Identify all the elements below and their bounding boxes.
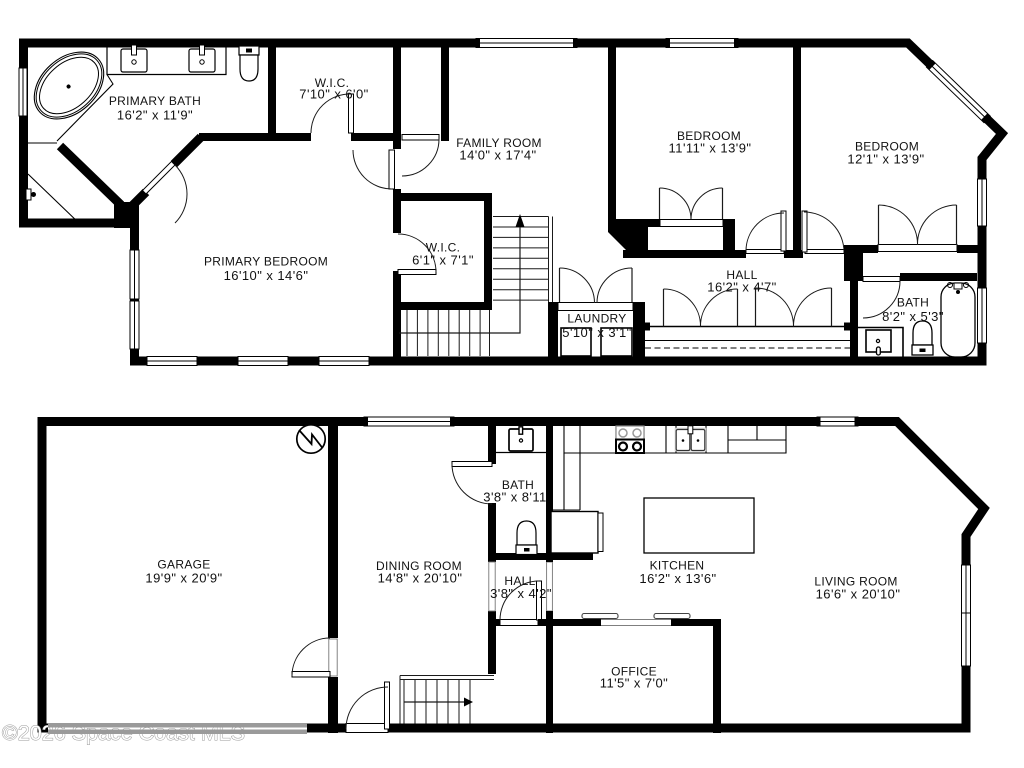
- svg-text:8'2" x 5'3": 8'2" x 5'3": [882, 309, 944, 324]
- svg-text:6'1" x 7'1": 6'1" x 7'1": [412, 253, 474, 268]
- svg-text:3'8" x 4'2": 3'8" x 4'2": [490, 586, 552, 601]
- svg-text:GARAGE: GARAGE: [157, 558, 210, 572]
- svg-text:16'2" x 13'6": 16'2" x 13'6": [639, 571, 716, 586]
- svg-text:16'2" x 11'9": 16'2" x 11'9": [117, 108, 193, 123]
- svg-text:LAUNDRY: LAUNDRY: [567, 312, 626, 326]
- svg-text:16'6" x 20'10": 16'6" x 20'10": [816, 587, 901, 602]
- svg-text:PRIMARY BATH: PRIMARY BATH: [109, 94, 201, 108]
- svg-text:BATH: BATH: [897, 296, 929, 310]
- svg-text:3'8" x 8'11: 3'8" x 8'11: [483, 490, 546, 505]
- svg-text:19'9" x 20'9": 19'9" x 20'9": [145, 571, 222, 586]
- svg-text:PRIMARY BEDROOM: PRIMARY BEDROOM: [204, 255, 328, 269]
- svg-text:11'11" x 13'9": 11'11" x 13'9": [669, 141, 752, 156]
- svg-text:7'10" x 6'0": 7'10" x 6'0": [299, 87, 368, 102]
- svg-text:11'5" x 7'0": 11'5" x 7'0": [600, 676, 669, 691]
- svg-text:12'1" x 13'9": 12'1" x 13'9": [847, 152, 924, 167]
- svg-text:14'8" x 20'10": 14'8" x 20'10": [378, 571, 463, 586]
- svg-text:5'10" x 3'1": 5'10" x 3'1": [562, 325, 631, 340]
- svg-text:16'10" x 14'6": 16'10" x 14'6": [224, 268, 309, 283]
- svg-text:14'0" x 17'4": 14'0" x 17'4": [459, 148, 536, 163]
- svg-text:16'2" x 4'7": 16'2" x 4'7": [707, 280, 776, 295]
